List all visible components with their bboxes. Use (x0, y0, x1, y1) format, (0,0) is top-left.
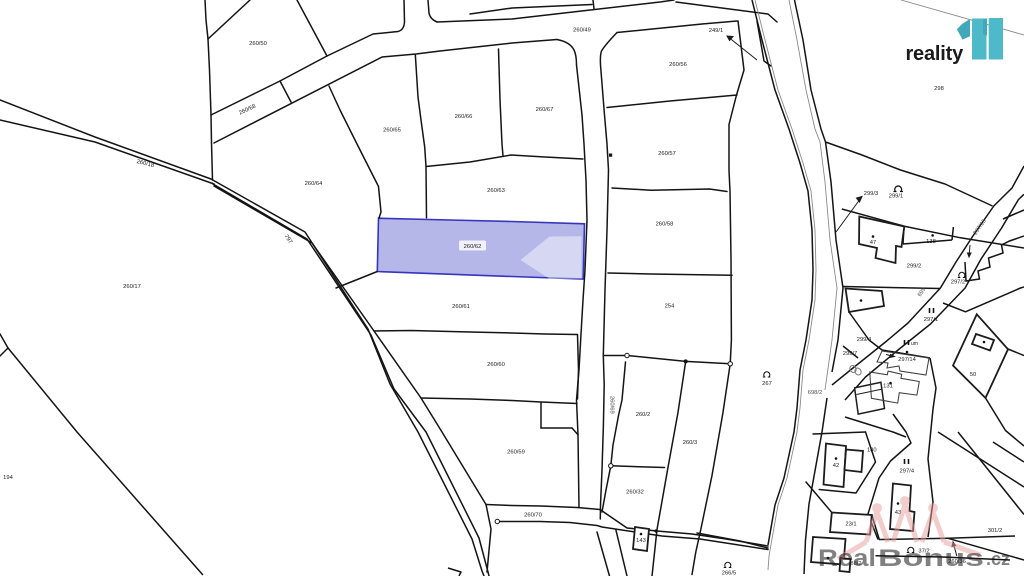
svg-text:260/69: 260/69 (608, 396, 614, 414)
svg-text:260/17: 260/17 (123, 284, 141, 290)
svg-text:260/65: 260/65 (383, 128, 401, 134)
svg-text:260/56: 260/56 (669, 62, 687, 68)
svg-text:260/66: 260/66 (455, 114, 473, 120)
svg-text:299/2: 299/2 (907, 264, 922, 270)
svg-text:reality: reality (905, 43, 964, 65)
svg-text:260/60: 260/60 (487, 362, 505, 368)
svg-text:260/57: 260/57 (658, 151, 676, 157)
svg-text:254: 254 (665, 304, 675, 310)
svg-text:260/3: 260/3 (683, 440, 698, 446)
svg-text:260/64: 260/64 (305, 181, 324, 187)
svg-text:138: 138 (926, 239, 936, 245)
svg-text:299/3: 299/3 (864, 191, 879, 197)
svg-text:130: 130 (867, 448, 877, 454)
svg-text:267: 267 (762, 381, 772, 387)
svg-text:260/59: 260/59 (507, 450, 525, 456)
svg-text:297/14: 297/14 (898, 357, 917, 363)
svg-text:260/63: 260/63 (487, 188, 505, 194)
svg-text:249/1: 249/1 (709, 28, 724, 34)
svg-text:Real: Real (818, 545, 876, 572)
svg-text:260/58: 260/58 (656, 222, 674, 228)
svg-text:Bonus: Bonus (878, 545, 984, 572)
svg-text:.cz: .cz (986, 549, 1010, 569)
svg-text:299/7: 299/7 (843, 351, 858, 357)
svg-text:297/4: 297/4 (900, 469, 915, 475)
svg-text:260/70: 260/70 (524, 513, 542, 519)
svg-text:260/62: 260/62 (464, 244, 482, 250)
svg-text:131: 131 (883, 384, 893, 390)
svg-text:297/2: 297/2 (951, 280, 966, 286)
svg-text:301/2: 301/2 (988, 528, 1003, 534)
svg-text:um: um (911, 341, 918, 347)
svg-text:260/50: 260/50 (249, 41, 267, 47)
svg-text:47: 47 (870, 240, 876, 246)
svg-text:143: 143 (636, 538, 646, 544)
svg-text:194: 194 (3, 475, 13, 481)
svg-text:260/2: 260/2 (636, 412, 651, 418)
svg-text:260/61: 260/61 (452, 304, 470, 310)
svg-text:299/1: 299/1 (889, 194, 904, 200)
svg-text:42: 42 (833, 463, 839, 469)
svg-text:698/2: 698/2 (808, 390, 823, 396)
svg-text:50: 50 (970, 372, 976, 378)
svg-text:298: 298 (934, 86, 944, 92)
svg-text:23/1: 23/1 (845, 522, 856, 528)
svg-text:297/1: 297/1 (924, 317, 939, 323)
svg-text:299/4: 299/4 (857, 337, 872, 343)
svg-text:260/32: 260/32 (626, 490, 644, 496)
svg-text:266/5: 266/5 (722, 571, 737, 577)
svg-text:260/67: 260/67 (536, 107, 554, 113)
svg-text:260/49: 260/49 (573, 28, 591, 34)
